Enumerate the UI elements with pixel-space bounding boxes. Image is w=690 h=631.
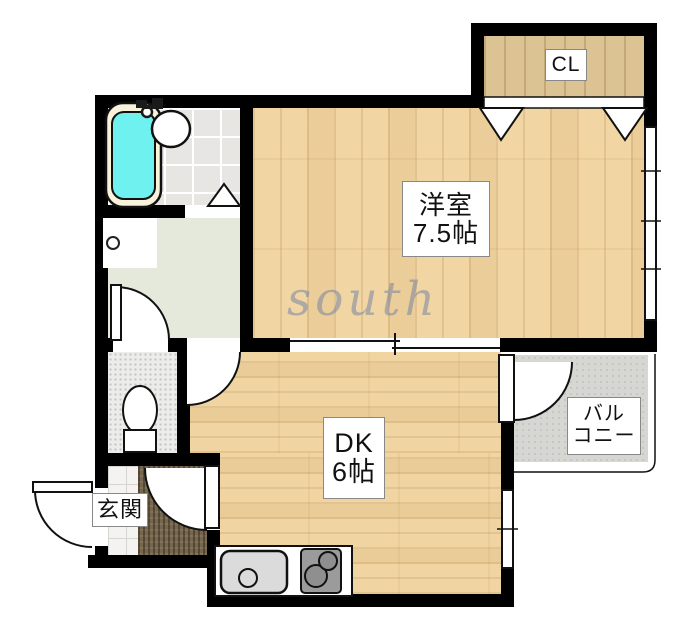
closet-door-icon [603,108,647,140]
balcony-label: バル コニー [567,397,641,455]
dk-name: DK [334,429,374,458]
bathtub-icon [106,103,161,207]
balcony-door-icon [499,355,572,422]
entrance-dk-door-icon [145,466,219,530]
balcony-name-line1: バル [583,404,625,426]
front-door-icon [33,482,92,547]
hall-dk-door-icon [187,352,240,405]
dk-label: DK 6帖 [323,417,385,499]
floor-plan: CL 洋室 7.5帖 DK 6帖 バル コニー 玄関 south [0,0,690,631]
washing-machine-icon [103,218,157,268]
toilet-door-icon [111,285,169,340]
watermark: south [287,272,439,327]
entrance-name: 玄関 [97,498,143,522]
western-room-name: 洋室 [419,191,473,219]
dk-size: 6帖 [332,458,376,487]
closet-label: CL [545,49,587,81]
closet-door-icon [480,108,523,140]
stove-icon [301,549,341,593]
sliding-door-icon [290,333,500,355]
kitchen-sink-icon [221,551,287,593]
closet-door-track [480,97,647,140]
window-western-icon [641,127,661,320]
western-room-size: 7.5帖 [413,219,479,247]
window-dk-icon [497,490,518,568]
entrance-label: 玄関 [92,493,148,527]
western-room-label: 洋室 7.5帖 [402,181,490,257]
closet-label-text: CL [552,54,581,77]
washbasin-icon [152,111,190,147]
bath-door-icon [208,184,240,206]
balcony-name-line2: コニー [573,426,636,448]
toilet-icon [123,386,157,452]
